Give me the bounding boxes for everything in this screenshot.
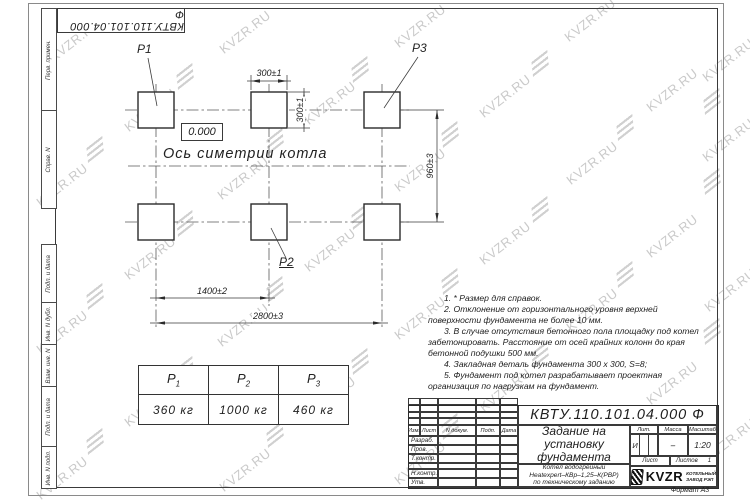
kvzr-logo-caption: КОТЕЛЬНЫЙ ЗАВОД РЭП	[686, 471, 716, 482]
pad-top-middle	[251, 92, 287, 128]
load-value-p2: 1000 кг	[209, 395, 279, 425]
lit-cells: И	[630, 434, 658, 456]
pad-label-p3: P3	[412, 41, 427, 55]
revision-header-row: Изм. Лист N докум. Подп. Дата	[408, 425, 518, 436]
dim-pad-width: 300±1	[256, 68, 283, 78]
drawing-sheet: KVZR.RUKVZR.RUKVZR.RUKVZR.RUKVZR.RUKVZR.…	[0, 0, 750, 500]
level-mark: 0.000	[181, 123, 223, 141]
doc-number: КВТУ.110.101.04.000 Ф	[518, 405, 717, 425]
note-4: 4. Закладная деталь фундамента 300 х 300…	[428, 359, 709, 370]
sheet-cell: Лист	[630, 456, 670, 466]
pad-label-p1: P1	[137, 42, 152, 56]
mass-value: –	[658, 434, 688, 456]
dim-total-span: 2800±3	[252, 311, 284, 321]
dim-row-spacing: 960±3	[425, 153, 435, 180]
pad-bottom-right	[364, 204, 400, 240]
scale-value: 1:20	[688, 434, 717, 456]
pad-p2	[251, 204, 287, 240]
dim-pad-height: 300±1	[295, 97, 305, 124]
technical-notes: 1. * Размер для справок. 2. Отклонение о…	[428, 293, 709, 392]
kvzr-logo-text: KVZR	[646, 469, 683, 484]
pad-label-p2: P2	[279, 255, 294, 269]
drawing-title: Задание на установку фундамента	[518, 425, 630, 464]
load-value-p1: 360 кг	[139, 395, 209, 425]
title-block: Изм. Лист N докум. Подп. Дата Разраб. Пр…	[408, 398, 717, 487]
pad-bottom-left	[138, 204, 174, 240]
load-table: P1 P2 P3 360 кг 1000 кг 460 кг	[138, 365, 349, 425]
sheets-cell: Листов 1	[670, 456, 717, 466]
dim-col-spacing: 1400±2	[196, 286, 228, 296]
note-5: 5. Фундамент под котел разрабатывает про…	[428, 370, 709, 392]
note-2: 2. Отклонение от горизонтального уровня …	[428, 304, 709, 326]
axis-of-symmetry-label: Ось симетрии котла	[163, 146, 327, 162]
pad-p3	[364, 92, 400, 128]
note-3: 3. В случае отсутствия бетонного пола пл…	[428, 326, 709, 359]
product-name: Котел водогрейный Heatexpert–КВр–1,25–К(…	[518, 464, 630, 487]
note-1: 1. * Размер для справок.	[428, 293, 709, 304]
company-logo: KVZR КОТЕЛЬНЫЙ ЗАВОД РЭП	[630, 466, 717, 487]
load-col-p3: P3	[279, 366, 349, 395]
props-header-row: Лит. Масса Масштаб	[630, 425, 717, 434]
staff-rows: Разраб. Пров. Т.контр. Н.контр. Утв.	[408, 436, 518, 487]
load-col-p2: P2	[209, 366, 279, 395]
load-value-p3: 460 кг	[279, 395, 349, 425]
load-col-p1: P1	[139, 366, 209, 395]
revision-reserve-rows	[408, 398, 518, 425]
pad-p1	[138, 92, 174, 128]
format-label: Формат А3	[655, 487, 725, 494]
kvzr-logo-icon	[630, 469, 643, 485]
